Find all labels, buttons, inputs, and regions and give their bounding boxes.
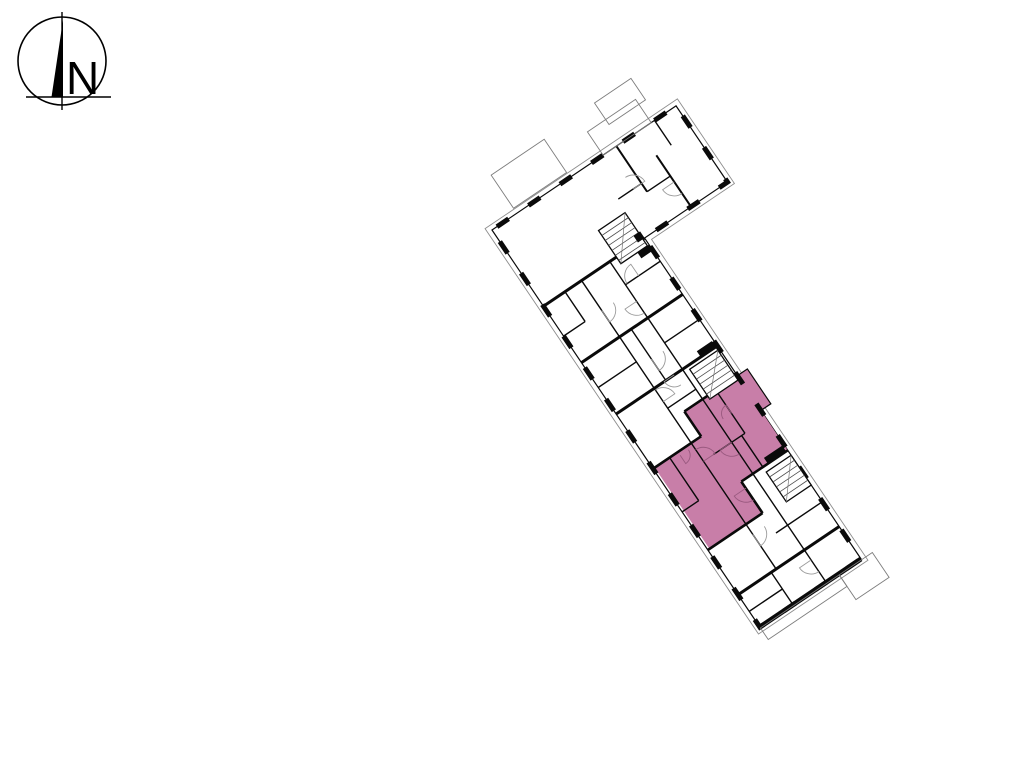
compass-letter: N (66, 52, 99, 104)
floor-plan (461, 63, 965, 655)
balcony (594, 78, 645, 124)
north-arrow-icon (52, 20, 64, 97)
floor-plan-canvas: N (0, 0, 1024, 768)
north-compass: N (18, 12, 111, 110)
page-canvas: N (0, 0, 1024, 768)
